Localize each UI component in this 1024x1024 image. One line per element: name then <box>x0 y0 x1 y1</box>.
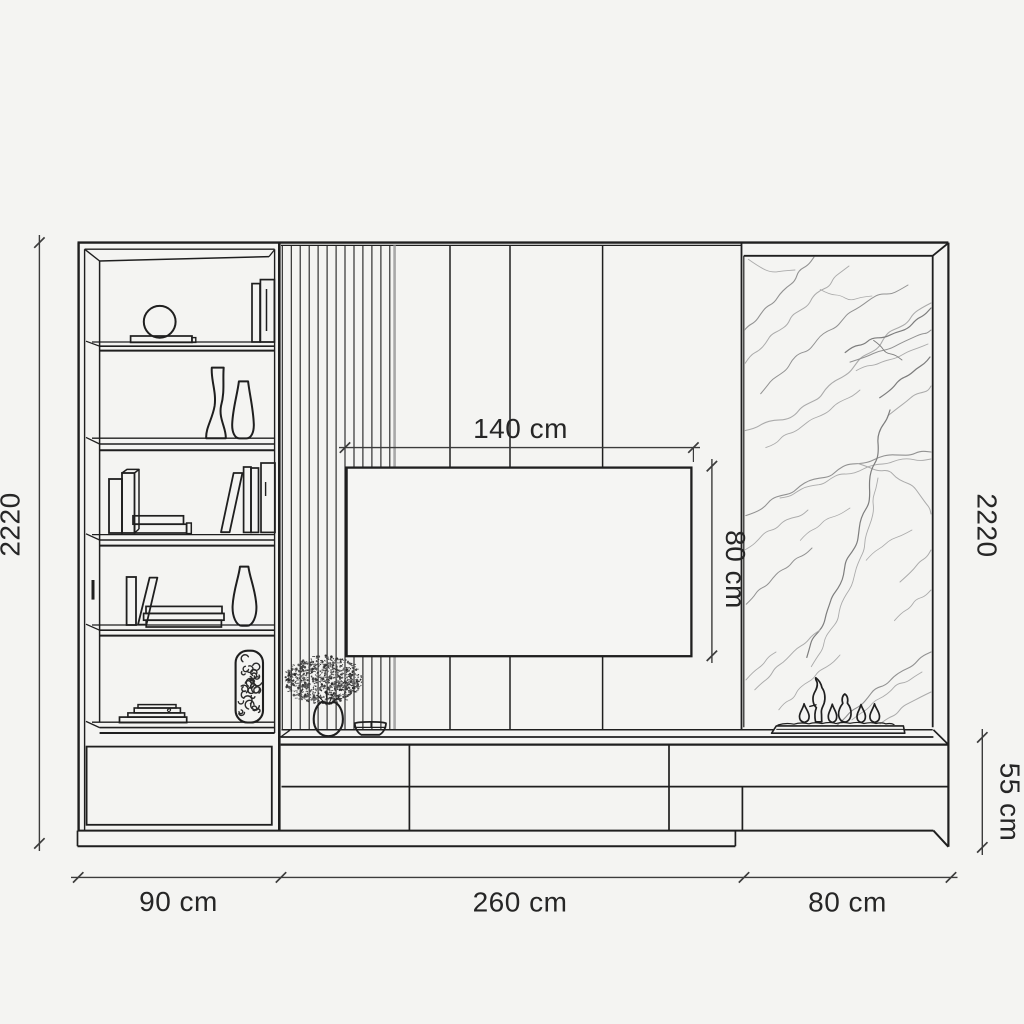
svg-text:55 cm: 55 cm <box>995 763 1024 842</box>
svg-text:260 cm: 260 cm <box>473 887 568 918</box>
svg-text:90 cm: 90 cm <box>139 886 218 917</box>
svg-text:2220: 2220 <box>972 493 1003 557</box>
svg-text:2220: 2220 <box>0 492 26 556</box>
svg-text:80 cm: 80 cm <box>720 530 751 609</box>
svg-text:140 cm: 140 cm <box>473 413 568 444</box>
svg-text:80 cm: 80 cm <box>808 887 887 918</box>
